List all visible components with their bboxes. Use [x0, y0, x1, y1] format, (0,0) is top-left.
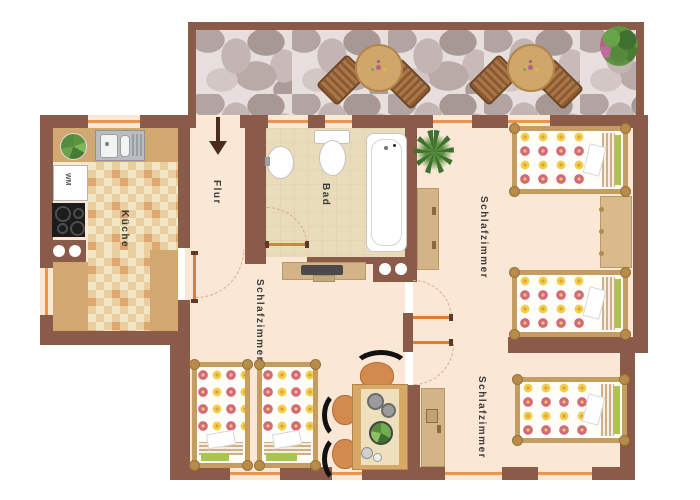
door-hinge: [265, 241, 269, 248]
door-leaf: [413, 316, 451, 319]
terrace-table-icon: [355, 44, 403, 92]
kitchen-tiles: [88, 250, 150, 331]
bathtub-icon: [366, 133, 407, 252]
floor-plan: WM: [0, 0, 700, 500]
entrance-arrow-icon: [209, 141, 227, 155]
terrace-wall-top: [188, 22, 644, 30]
vanity-cabinet: [373, 257, 412, 282]
wall: [170, 331, 190, 480]
room-label-bedroom-top-right: Schlafzimmer: [478, 196, 489, 279]
door-hinge: [191, 299, 198, 303]
room-label-bedroom-middle: Schlafzimmer: [254, 279, 265, 362]
plant-icon: [414, 130, 454, 174]
toilet-bowl-icon: [319, 140, 346, 176]
window: [538, 467, 592, 480]
room-label-kitchen: Küche: [119, 210, 130, 248]
plant-icon: [60, 133, 87, 160]
window: [40, 268, 53, 315]
sideboard: [282, 262, 366, 280]
basin-icon: [395, 263, 407, 275]
kitchen-tiles: [88, 162, 178, 250]
room-label-hallway: Flur: [211, 180, 222, 205]
wardrobe: [421, 388, 445, 467]
room-label-bathroom: Bad: [320, 183, 331, 206]
kitchen-table: [150, 250, 178, 331]
washing-machine-label: WM: [64, 173, 71, 185]
window: [88, 115, 140, 128]
terrace-table-icon: [507, 44, 555, 92]
stove-icon: [52, 203, 85, 237]
room-label-bedroom-bottom-right: Schlafzimmer: [476, 376, 487, 459]
bed-icon: [512, 270, 628, 337]
kitchen-sink-cabinet: [47, 240, 86, 262]
door-hinge: [191, 251, 198, 255]
washing-machine: WM: [53, 165, 88, 201]
window: [433, 115, 472, 128]
desk: [600, 196, 632, 268]
wall: [403, 313, 413, 352]
door-leaf: [267, 243, 307, 246]
basin-icon: [69, 245, 81, 257]
window: [445, 467, 502, 480]
basin-icon: [379, 263, 391, 275]
bed-icon: [512, 126, 628, 194]
wall: [633, 128, 648, 353]
washbasin-icon: [267, 146, 294, 179]
window: [268, 115, 308, 128]
dining-table: [352, 384, 408, 470]
kitchen-sink-icon: [95, 130, 145, 161]
door-leaf: [193, 253, 196, 301]
basin-icon: [53, 245, 65, 257]
wall: [178, 300, 190, 331]
wall: [40, 331, 185, 345]
bed-icon: [257, 362, 318, 468]
entrance-arrow-icon: [216, 117, 220, 141]
bed-icon: [515, 377, 627, 443]
wall: [178, 128, 190, 248]
kitchen-counter: [52, 262, 88, 331]
bed-icon: [192, 362, 250, 468]
door-leaf: [413, 341, 451, 344]
door-hinge: [449, 314, 453, 321]
wall: [245, 128, 266, 264]
wardrobe: [417, 188, 439, 270]
terrace-wall-left: [188, 30, 196, 115]
washbasin-tap-icon: [265, 157, 270, 166]
door-hinge: [305, 241, 309, 248]
door-hinge: [449, 339, 453, 346]
plant-icon: [600, 26, 638, 66]
window: [325, 115, 352, 128]
